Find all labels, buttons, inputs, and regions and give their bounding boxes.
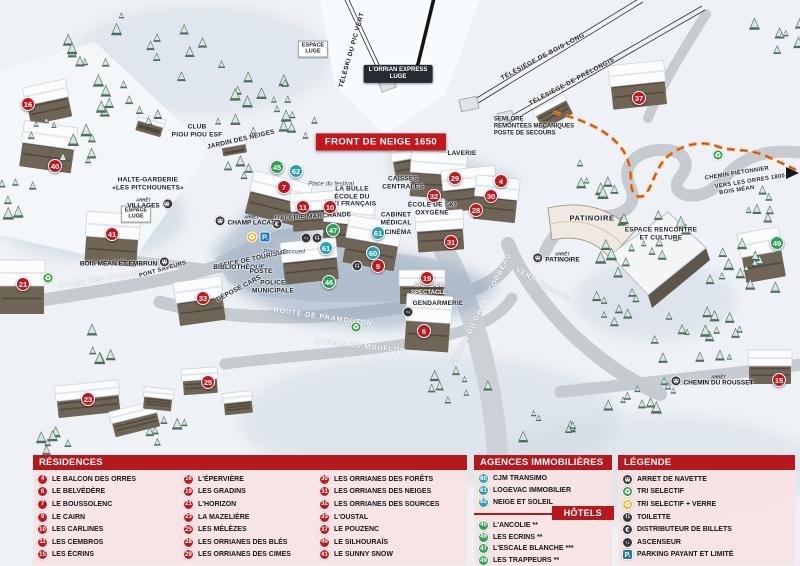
legend-item: ♻ TRI SELECTIF [622,486,791,499]
hotels-list: 45 L'ANCOLIE ** 46 LES ECRINS ** 47 L'ES… [478,519,608,566]
residence-name: LE BOUSSOLENC [52,501,112,508]
residence-number-badge: 21 [183,499,194,510]
residence-name: L'HORIZON [198,501,236,508]
legend-item: 28 LES ORRIANES DES BLÉS [183,536,319,549]
map-marker[interactable]: 4 [494,174,508,188]
agences-title: AGENCES IMMOBILIÈRES [474,455,612,470]
legend-item: € DISTRIBUTEUR DE BILLETS [622,523,791,536]
residence-number-badge: 33 [319,512,330,523]
map-marker[interactable]: 16 [21,97,35,111]
residence-number-badge: 28 [183,537,194,548]
legend-item: 10 LES CARLINES [37,523,183,536]
residences-col-3: 30 LES ORRIANES DES FORÊTS 31 LES ORRIAN… [319,473,463,561]
legend-item: 46 LES ECRINS ** [478,531,608,543]
residence-name: LES ORRIANES DES FORÊTS [334,476,433,483]
agences-panel: AGENCES IMMOBILIÈRES 60 CJM TRANSIMO 61 … [474,455,612,566]
residence-number-badge: 37 [319,524,330,535]
map-marker[interactable]: 33 [196,291,210,305]
map-marker[interactable]: 29 [448,171,462,185]
agence-number-badge: 61 [478,485,489,496]
residence-name: LES GRADINS [198,488,246,495]
front-de-neige-banner: FRONT DE NEIGE 1650 [316,133,446,150]
map-marker[interactable]: 46 [322,275,336,289]
residence-name: L'ÉPERVIÈRE [198,476,244,483]
residence-number-badge: 29 [183,549,194,560]
legend-item: 19 LES GRADINS [183,486,319,499]
tri-icon: ♻ [622,486,633,497]
resort-map: TÉLÉSKI DU PIC VERTTÉLÉSIÈGE DE BOIS LON… [0,0,800,566]
legend-item: 49 LES TRAPPEURS ** [478,555,608,566]
hotel-number-badge: 46 [478,532,489,543]
map-marker[interactable]: 28 [469,203,483,217]
legend-item: 61 LOGEVAC IMMOBILIER [478,485,608,497]
residences-panel: RÉSIDENCES 4 LE BALCON DES ORRES 6 LE BE… [33,455,467,565]
hotel-number-badge: 49 [478,555,489,566]
map-marker[interactable]: 9 [371,259,385,273]
map-marker[interactable]: 40 [48,159,62,173]
legend-item: 4 LE BALCON DES ORRES [37,473,183,486]
residence-name: LES ORRIANES DES NEIGES [334,488,431,495]
legende-panel: LÉGENDE ARRET DE NAVETTE ♻ TRI SELECTIF … [618,455,795,565]
residence-number-badge: 40 [319,537,330,548]
euro-icon: € [622,524,633,535]
residence-number-badge: 6 [37,486,48,497]
residence-name: LES ORRIANES DES BLÉS [198,539,287,546]
legende-label: ARRET DE NAVETTE [637,476,707,483]
residence-number-badge: 15 [37,549,48,560]
legend-item: 32 LES ORRIANES DES SOURCES [319,498,463,511]
legend-item: 11 LES CEMBROS [37,536,183,549]
residence-number-badge: 41 [319,549,330,560]
legende-label: PARKING PAYANT ET LIMITÉ [637,551,733,558]
legend-item: ASCENSEUR [622,536,791,549]
agence-name: CJM TRANSIMO [493,475,547,482]
legend-item: 47 L'ESCALE BLANCHE *** [478,543,608,555]
toilet-icon [622,512,633,523]
legend-item: 6 LE BELVÉDÈRE [37,486,183,499]
legend-item: 15 LES ÉCRINS [37,549,183,562]
residence-number-badge: 19 [183,486,194,497]
residence-number-badge: 23 [183,512,194,523]
map-marker[interactable]: 10 [323,200,337,214]
legende-label: TRI SELECTIF + VERRE [637,501,716,508]
map-marker[interactable]: 62 [289,164,303,178]
legende-label: TRI SELECTIF [637,488,684,495]
residence-number-badge: 32 [319,499,330,510]
map-marker[interactable]: 45 [270,160,284,174]
legende-label: DISTRIBUTEUR DE BILLETS [637,526,732,533]
agence-number-badge: 60 [478,473,489,484]
map-marker[interactable]: 49 [770,236,784,250]
residence-name: LES MÉLÈZES [198,526,247,533]
agence-number-badge: 62 [478,497,489,508]
hotel-name: LES TRAPPEURS ** [493,557,559,564]
hotels-title: HÔTELS [552,506,614,520]
hotel-name: L'ESCALE BLANCHE *** [493,545,574,552]
residence-number-badge: 7 [37,499,48,510]
residence-name: LE SUNNY SNOW [334,551,393,558]
residence-name: LA MAZELIÈRE [198,514,249,521]
legend-item: 30 LES ORRIANES DES FORÊTS [319,473,463,486]
residence-number-badge: 30 [319,474,330,485]
map-marker[interactable]: 41 [105,227,119,241]
residence-name: LE CAIRN [52,514,85,521]
map-marker[interactable]: 11 [296,200,310,214]
legend-item: ♻ TRI SELECTIF + VERRE [622,498,791,511]
legend-item: 60 CJM TRANSIMO [478,473,608,485]
residence-name: LES ÉCRINS [52,551,94,558]
residence-name: LE SILHOURAÏS [334,539,388,546]
residence-name: LE BALCON DES ORRES [52,476,136,483]
residence-number-badge: 11 [37,537,48,548]
legende-list: ARRET DE NAVETTE ♻ TRI SELECTIF ♻ TRI SE… [622,473,791,561]
tri-verre-icon: ♻ [622,499,633,510]
legend-item: 9 LE CAIRN [37,511,183,524]
residence-name: L'OUSTAL [334,514,368,521]
hotel-number-badge: 47 [478,543,489,554]
residence-name: LE BELVÉDÈRE [52,488,105,495]
map-marker[interactable]: 37 [632,91,646,105]
map-marker[interactable]: 21 [16,277,30,291]
legend-item: 21 L'HORIZON [183,498,319,511]
residence-name: LES CEMBROS [52,539,103,546]
map-marker[interactable]: 23 [81,392,95,406]
legend-item: 16 L'ÉPERVIÈRE [183,473,319,486]
legend-item: 25 LES MÉLÈZES [183,523,319,536]
map-marker[interactable]: 60 [366,246,380,260]
map-marker[interactable]: 61 [371,226,385,240]
residence-number-badge: 10 [37,524,48,535]
agence-name: LOGEVAC IMMOBILIER [493,487,571,494]
residence-name: LES ORRIANES DES SOURCES [334,501,439,508]
residences-col-2: 16 L'ÉPERVIÈRE 19 LES GRADINS 21 L'HORIZ… [183,473,319,561]
map-marker[interactable]: 61 [319,241,333,255]
legend-item: 37 LE POUZENC [319,523,463,536]
hotel-name: LES ECRINS ** [493,534,542,541]
legend-item: 40 LE SILHOURAÏS [319,536,463,549]
legend-item: 31 LES ORRIANES DES NEIGES [319,486,463,499]
parking-icon: P. [622,549,633,560]
legend-item: ARRET DE NAVETTE [622,473,791,486]
residence-name: LE POUZENC [334,526,379,533]
hotels-divider: HÔTELS [478,508,608,519]
residence-name: LES CARLINES [52,526,103,533]
map-marker[interactable]: 31 [444,235,458,249]
legend-item: 41 LE SUNNY SNOW [319,549,463,562]
elevator-icon [622,537,633,548]
map-marker[interactable]: 19 [420,271,434,285]
map-marker[interactable]: 15 [772,373,786,387]
residence-number-badge: 4 [37,474,48,485]
legend-item: 7 LE BOUSSOLENC [37,498,183,511]
map-marker[interactable]: 7 [277,180,291,194]
agence-name: NEIGE ET SOLEIL [493,499,553,506]
legende-title: LÉGENDE [618,455,795,470]
legend-item: 33 L'OUSTAL [319,511,463,524]
residence-number-badge: 25 [183,524,194,535]
residence-number-badge: 9 [37,512,48,523]
legend-item: 23 LA MAZELIÈRE [183,511,319,524]
map-marker[interactable]: 47 [326,223,340,237]
bus-icon [622,474,633,485]
agences-list: 60 CJM TRANSIMO 61 LOGEVAC IMMOBILIER 62… [478,473,608,508]
hotel-name: L'ANCOLIE ** [493,522,538,529]
legend-item: TOILETTE [622,511,791,524]
legend-item: 45 L'ANCOLIE ** [478,519,608,531]
residence-name: LES ORRIANES DES CIMES [198,551,291,558]
map-marker[interactable]: 6 [417,324,431,338]
residence-number-badge: 16 [183,474,194,485]
legend-item: P. PARKING PAYANT ET LIMITÉ [622,549,791,562]
residences-col-1: 4 LE BALCON DES ORRES 6 LE BELVÉDÈRE 7 L… [37,473,183,561]
hotel-number-badge: 45 [478,520,489,531]
residences-title: RÉSIDENCES [33,455,467,470]
legende-label: TOILETTE [637,514,671,521]
residence-number-badge: 31 [319,486,330,497]
map-marker[interactable]: 30 [484,189,498,203]
legend-item: 29 LES ORRIANES DES CIMES [183,549,319,562]
legende-label: ASCENSEUR [637,539,681,546]
map-marker[interactable]: 32 [427,189,441,203]
map-marker[interactable]: 25 [201,375,215,389]
